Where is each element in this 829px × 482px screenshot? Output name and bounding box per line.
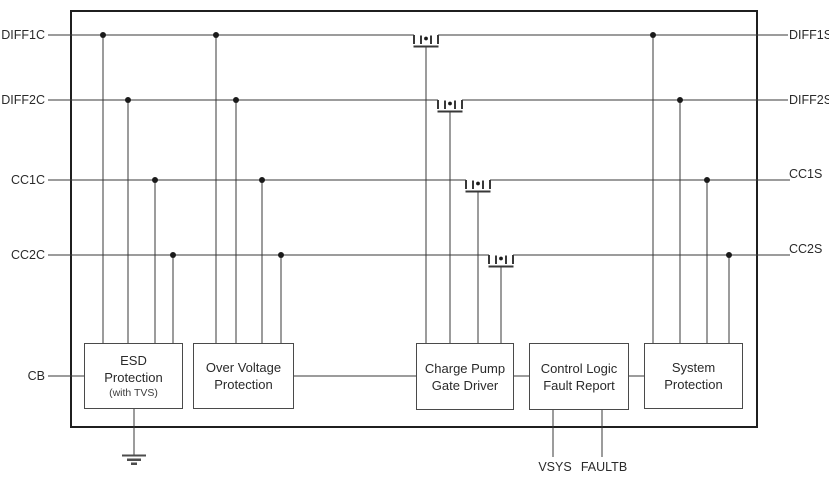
block-control-logic-fault-report: Control Logic Fault Report xyxy=(529,343,629,410)
block-esd-protection: ESD Protection (with TVS) xyxy=(84,343,183,409)
block-label: Protection xyxy=(104,369,163,386)
pin-label-diff2s: DIFF2S xyxy=(789,92,829,108)
pin-label-faultb: FAULTB xyxy=(581,459,627,475)
block-label: (with TVS) xyxy=(109,386,158,400)
junction-dot xyxy=(278,252,284,258)
junction-dot xyxy=(233,97,239,103)
block-label: Protection xyxy=(664,376,723,393)
junction-dot xyxy=(726,252,732,258)
junction-dot xyxy=(125,97,131,103)
block-charge-pump-gate-driver: Charge Pump Gate Driver xyxy=(416,343,514,410)
pin-label-cb: CB xyxy=(0,368,45,384)
nmos-transistor-icon xyxy=(414,35,439,343)
block-label: Protection xyxy=(214,376,273,393)
pin-label-cc1s: CC1S xyxy=(789,166,822,182)
block-over-voltage-protection: Over Voltage Protection xyxy=(193,343,294,409)
block-label: Gate Driver xyxy=(432,377,498,394)
nmos-transistor-icon xyxy=(489,255,514,343)
pin-label-diff2c: DIFF2C xyxy=(0,92,45,108)
junction-dot xyxy=(170,252,176,258)
nmos-transistor-icon xyxy=(438,100,463,343)
junction-dot xyxy=(677,97,683,103)
junction-dot xyxy=(152,177,158,183)
pin-label-diff1s: DIFF1S xyxy=(789,27,829,43)
block-label: ESD xyxy=(120,352,147,369)
esd-drop-wires xyxy=(100,32,176,343)
pin-label-cc2s: CC2S xyxy=(789,241,822,257)
junction-dot xyxy=(650,32,656,38)
block-label: Control Logic xyxy=(541,360,618,377)
pin-label-diff1c: DIFF1C xyxy=(0,27,45,43)
pin-label-cc2c: CC2C xyxy=(0,247,45,263)
junction-dot xyxy=(100,32,106,38)
nmos-transistor-icon xyxy=(466,180,491,343)
ground-icon xyxy=(122,409,146,464)
block-label: Over Voltage xyxy=(206,359,281,376)
block-label: System xyxy=(672,359,715,376)
diagram-wiring xyxy=(0,0,829,482)
block-system-protection: System Protection xyxy=(644,343,743,409)
pin-label-cc1c: CC1C xyxy=(0,172,45,188)
junction-dot xyxy=(704,177,710,183)
block-label: Charge Pump xyxy=(425,360,505,377)
block-label: Fault Report xyxy=(543,377,615,394)
junction-dot xyxy=(259,177,265,183)
junction-dot xyxy=(213,32,219,38)
ovp-drop-wires xyxy=(213,32,284,343)
block-diagram-canvas: ESD Protection (with TVS) Over Voltage P… xyxy=(0,0,829,482)
system-protection-drop-wires xyxy=(650,32,732,343)
pin-label-vsys: VSYS xyxy=(538,459,571,475)
